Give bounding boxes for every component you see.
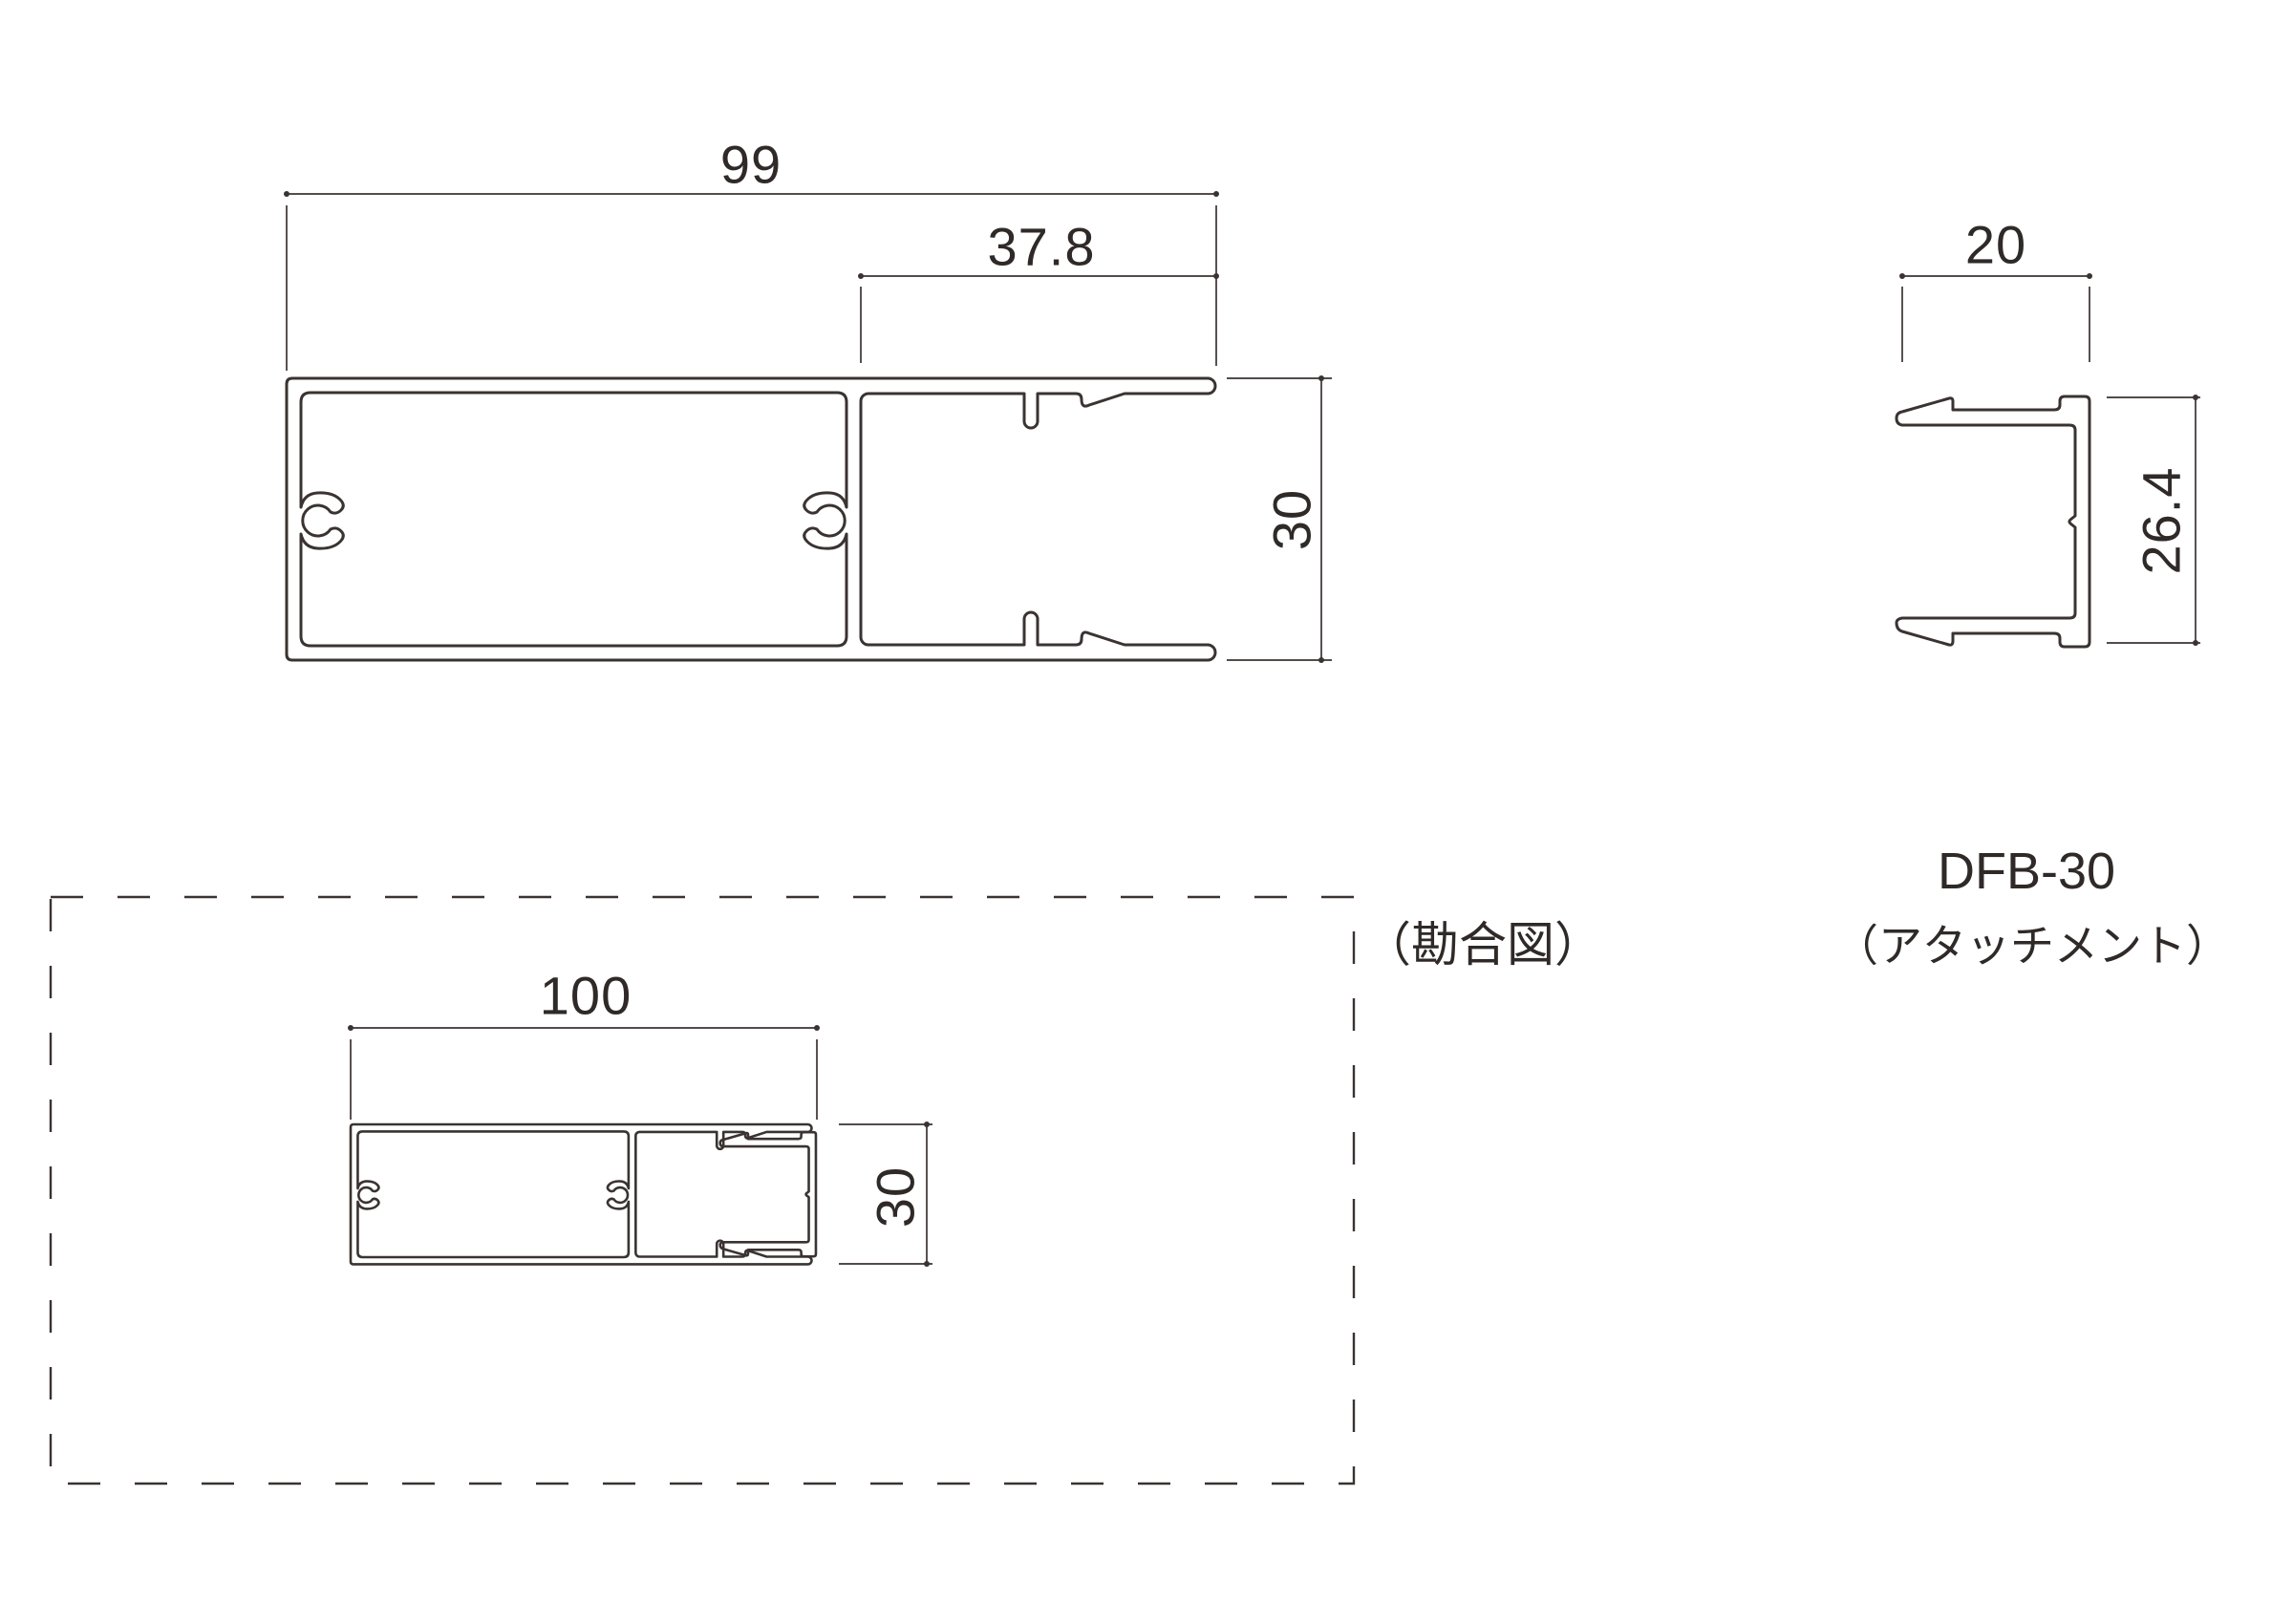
dim-tick [2193,395,2198,400]
dim-tick [858,273,864,279]
dim-tick [1213,191,1219,197]
assembly-attachment-outline [720,1132,816,1256]
assembly-view: （勘合図） 100 30 [51,897,1602,1484]
dim-tick [348,1025,354,1031]
attachment-name-label: （アタッチメント） [1834,921,2230,971]
assembly-attachment [720,1132,816,1256]
dim-tick [1318,657,1324,663]
dim-tick [2087,273,2092,279]
assembly-dashed-border [51,897,1354,1484]
dim-100: 100 [348,966,820,1121]
dim-tick [1213,273,1219,279]
assembly-main-chamber [357,1131,628,1257]
dim-20-label: 20 [1965,215,2026,275]
attachment-profile-view: 20 26.4 DFB-30 （アタッチメント） [1834,215,2230,972]
dim-30-assembly: 30 [839,1122,932,1267]
main-profile-view: 99 37.8 30 [284,135,1332,664]
dim-tick [814,1025,820,1031]
dim-30-main: 30 [1227,375,1332,663]
dim-37-8-label: 37.8 [988,217,1096,277]
dim-tick [284,191,289,197]
dim-tick [924,1261,930,1267]
attachment-outline [1897,396,2089,647]
dim-tick [2193,640,2198,646]
dim-26-4-label: 26.4 [2132,467,2192,575]
drawing-sheet: 99 37.8 30 20 [0,0,2293,1624]
dim-tick [1318,375,1324,381]
attachment-model-label: DFB-30 [1938,843,2115,900]
dim-26-4: 26.4 [2107,395,2200,646]
assembly-caption: （勘合図） [1363,918,1602,972]
dim-99-label: 99 [720,135,782,195]
dim-tick [1899,273,1905,279]
dim-tick [924,1122,930,1127]
main-profile-chamber [301,393,846,646]
dim-37-8: 37.8 [858,217,1219,364]
technical-drawing: 99 37.8 30 20 [0,0,2293,1624]
dim-30-assembly-label: 30 [866,1166,926,1228]
main-profile-outline [287,378,1215,660]
dim-30-main-label: 30 [1262,489,1322,550]
dim-100-label: 100 [540,966,632,1026]
dim-20: 20 [1899,215,2092,363]
